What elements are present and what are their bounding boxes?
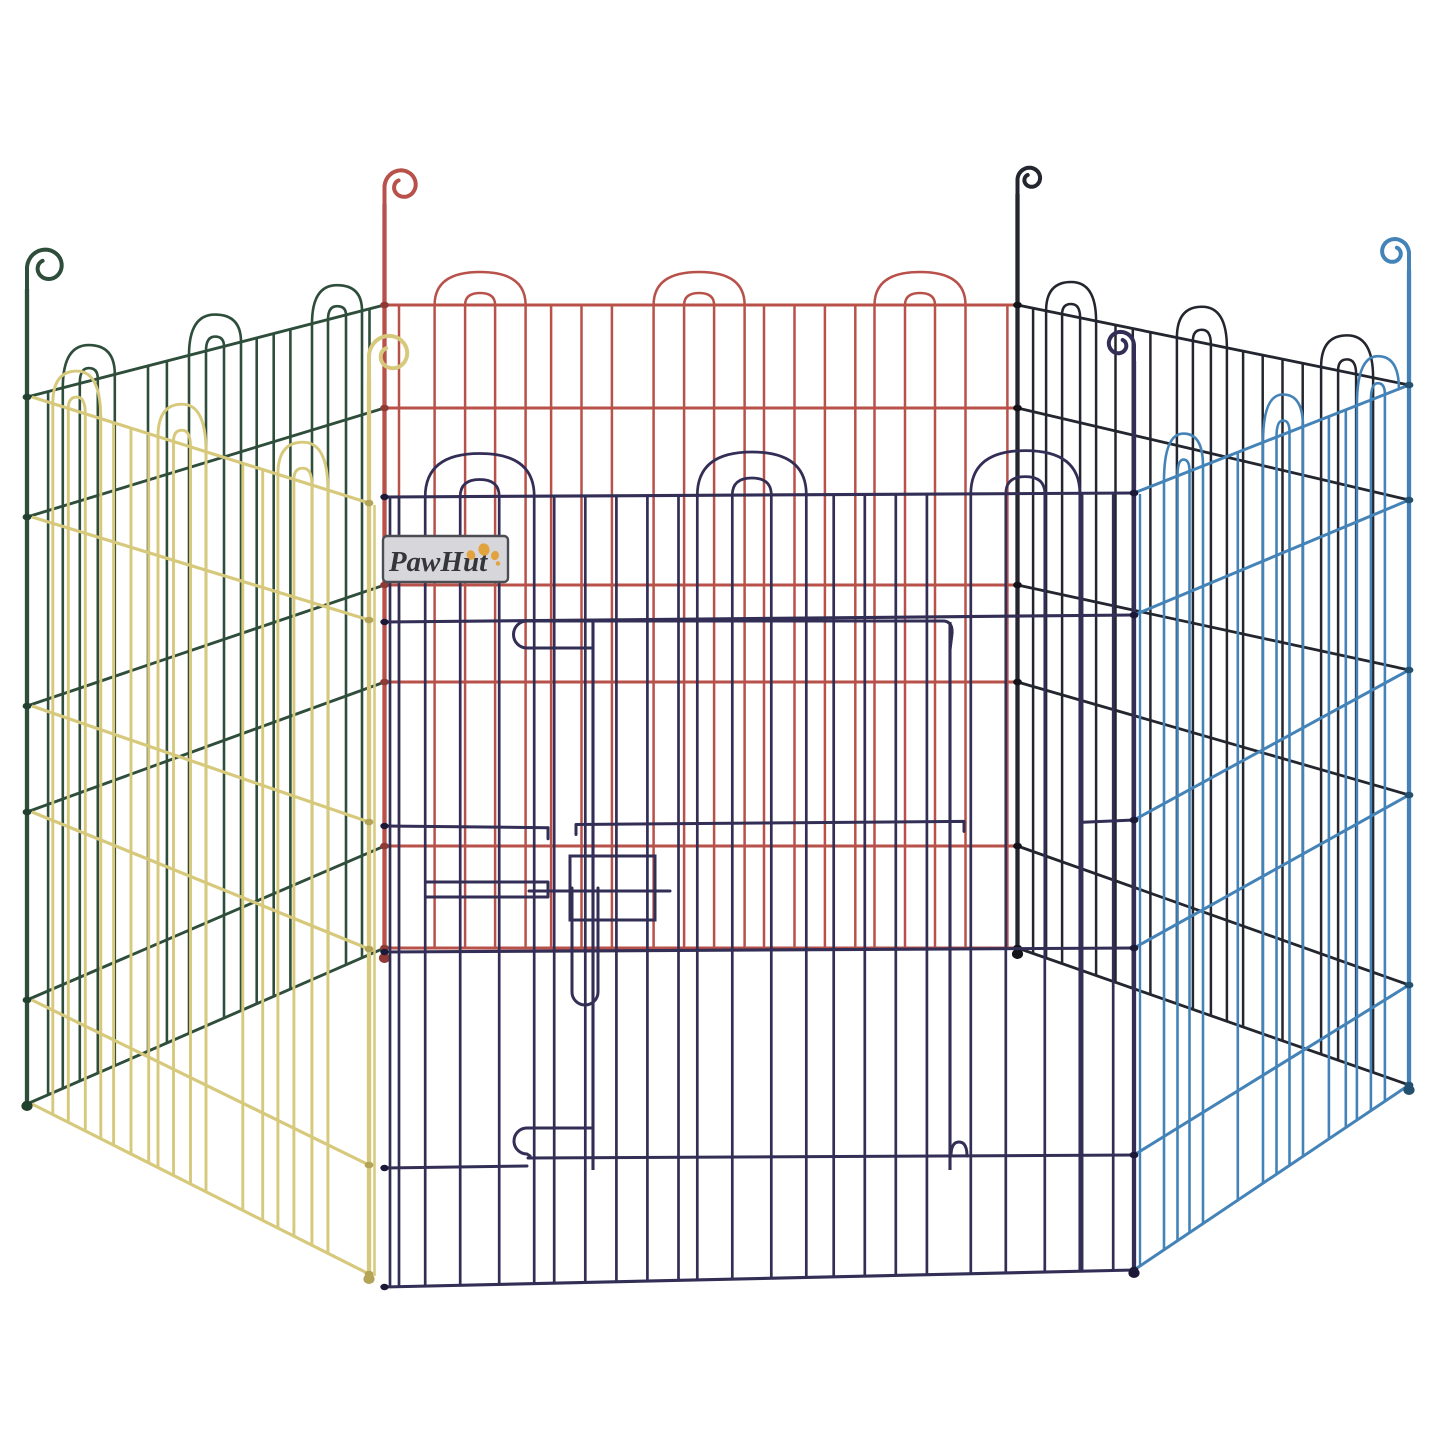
svg-text:PawHut: PawHut — [388, 546, 488, 578]
